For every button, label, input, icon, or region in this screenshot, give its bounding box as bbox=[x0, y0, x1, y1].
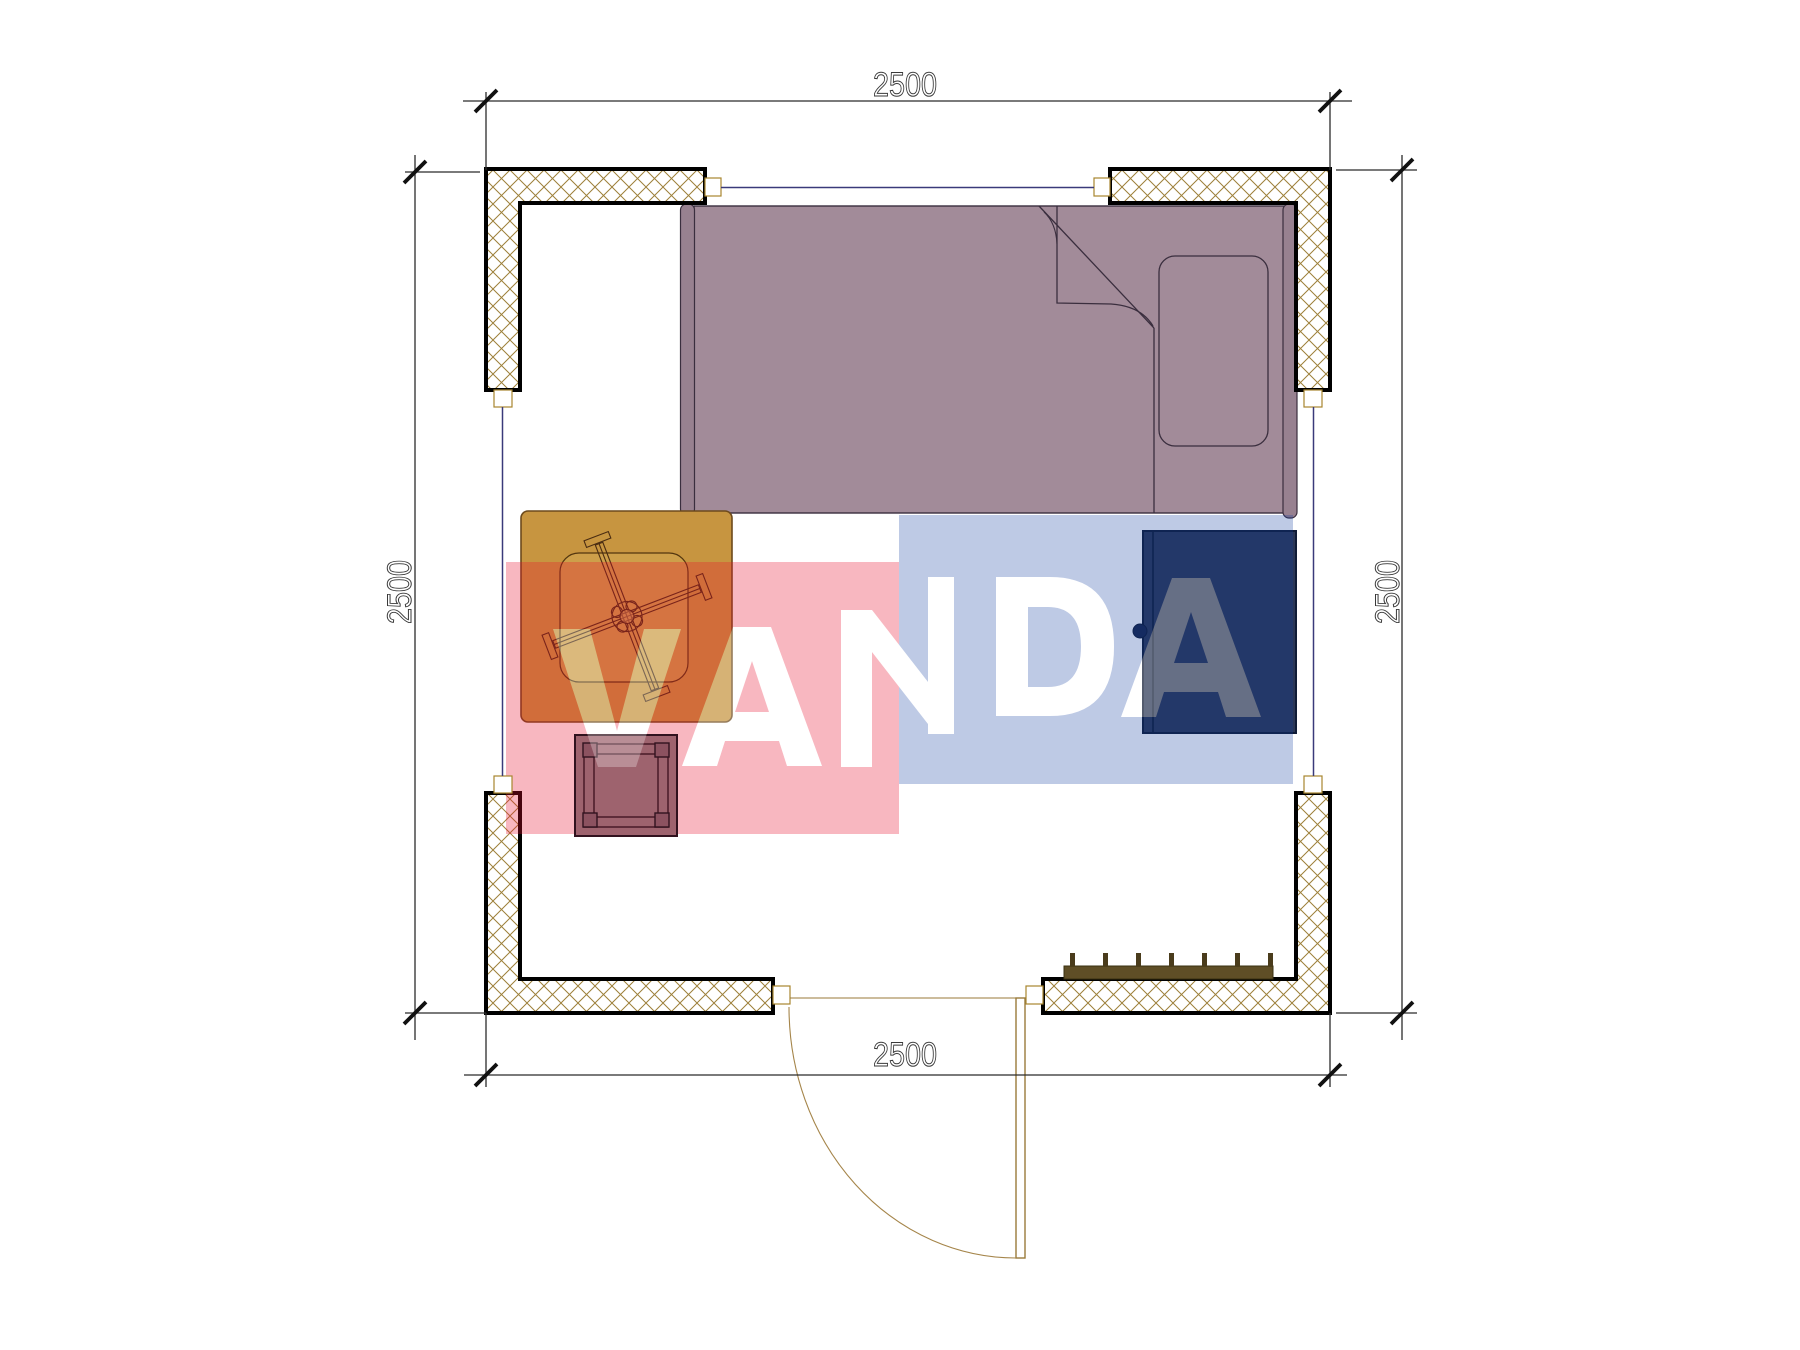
svg-text:2500: 2500 bbox=[1369, 560, 1407, 624]
svg-text:2500: 2500 bbox=[873, 66, 937, 104]
svg-text:2500: 2500 bbox=[381, 560, 419, 624]
svg-text:2500: 2500 bbox=[873, 1036, 937, 1074]
